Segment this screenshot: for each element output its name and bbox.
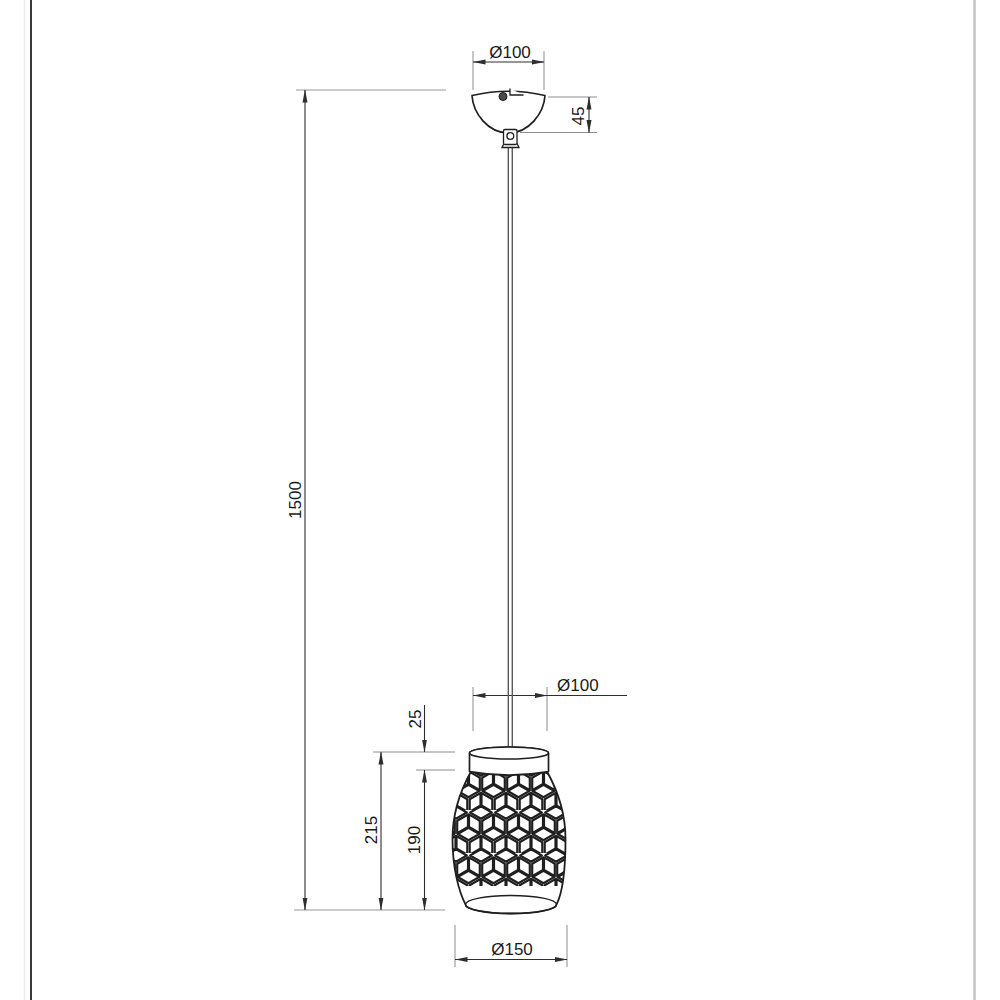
shade-cap-top-rim	[470, 747, 549, 759]
ceiling-canopy	[472, 89, 545, 134]
dim-canopy-height-label: 45	[569, 107, 588, 126]
dim-shade-cap-height-label: 25	[406, 710, 425, 729]
cable-grip	[502, 130, 519, 148]
canopy-dome	[472, 91, 545, 133]
dim-shade-top-diameter-label: Ø100	[557, 676, 599, 695]
dim-shade-body-height-label: 190	[405, 826, 424, 854]
dim-canopy-diameter: Ø100	[473, 43, 544, 90]
canopy-screw-icon	[499, 93, 507, 101]
pendant-lamp-dimension-drawing: Ø100 45 1500 Ø100 25	[0, 0, 1000, 1000]
dim-shade-top-diameter: Ø100	[473, 676, 627, 731]
lamp-drawing	[450, 89, 568, 914]
dim-suspension-length-label: 1500	[286, 481, 305, 519]
suspension-cable	[508, 140, 512, 751]
dim-shade-bottom-diameter: Ø150	[455, 925, 567, 967]
shade-pattern	[450, 768, 568, 886]
dim-shade-total-height: 215	[362, 752, 381, 910]
dim-shade-cap-height: 25	[373, 705, 455, 770]
technical-drawing-page: Ø100 45 1500 Ø100 25	[0, 0, 1000, 1000]
dim-shade-total-height-label: 215	[362, 816, 381, 844]
dim-shade-body-height: 190	[405, 770, 425, 910]
lamp-shade	[450, 747, 568, 914]
dim-canopy-diameter-label: Ø100	[489, 43, 531, 62]
dim-suspension-length: 1500	[286, 90, 446, 910]
grip-hole	[507, 133, 514, 140]
dim-shade-bottom-diameter-label: Ø150	[491, 940, 533, 959]
